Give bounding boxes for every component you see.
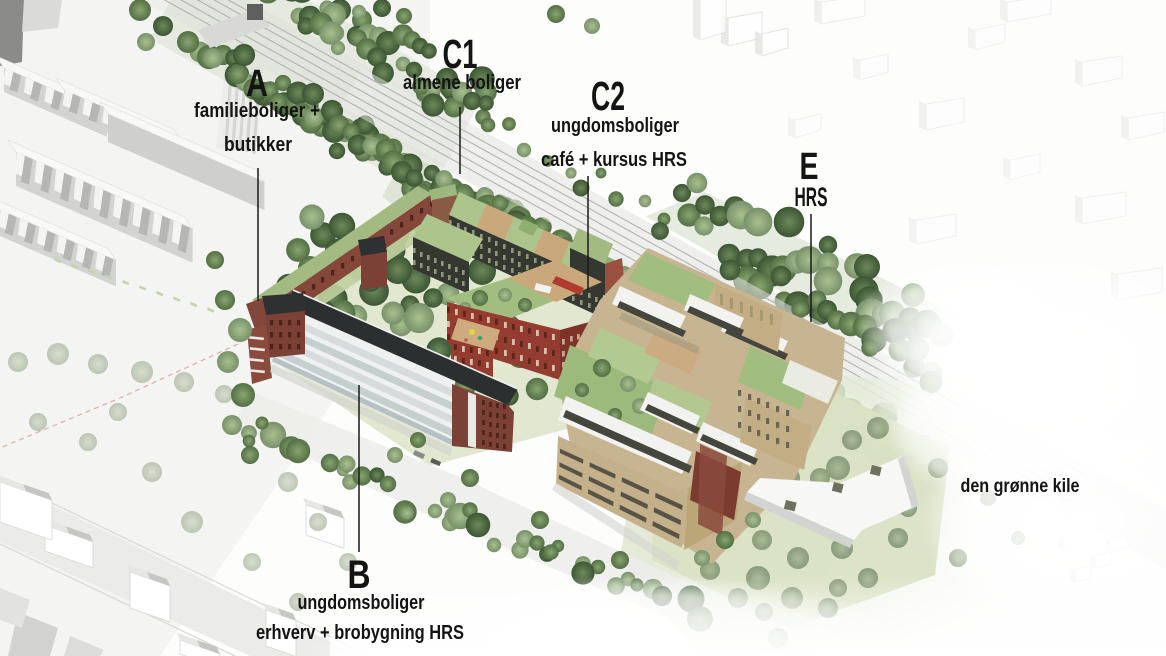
svg-text:B: B	[348, 553, 371, 597]
svg-text:HRS: HRS	[795, 182, 828, 212]
svg-text:butikker: butikker	[224, 134, 292, 156]
svg-text:den grønne kile: den grønne kile	[961, 476, 1080, 497]
svg-text:A: A	[246, 63, 268, 105]
svg-text:ungdomsboliger: ungdomsboliger	[551, 115, 679, 137]
svg-text:almene boliger: almene boliger	[403, 72, 521, 94]
svg-text:C2: C2	[591, 73, 625, 119]
svg-text:C1: C1	[443, 31, 478, 77]
svg-text:café + kursus HRS: café + kursus HRS	[541, 149, 687, 171]
svg-text:familieboliger +: familieboliger +	[194, 100, 320, 122]
svg-text:ungdomsboliger: ungdomsboliger	[298, 592, 425, 614]
svg-text:erhverv + brobygning HRS: erhverv + brobygning HRS	[256, 622, 464, 644]
